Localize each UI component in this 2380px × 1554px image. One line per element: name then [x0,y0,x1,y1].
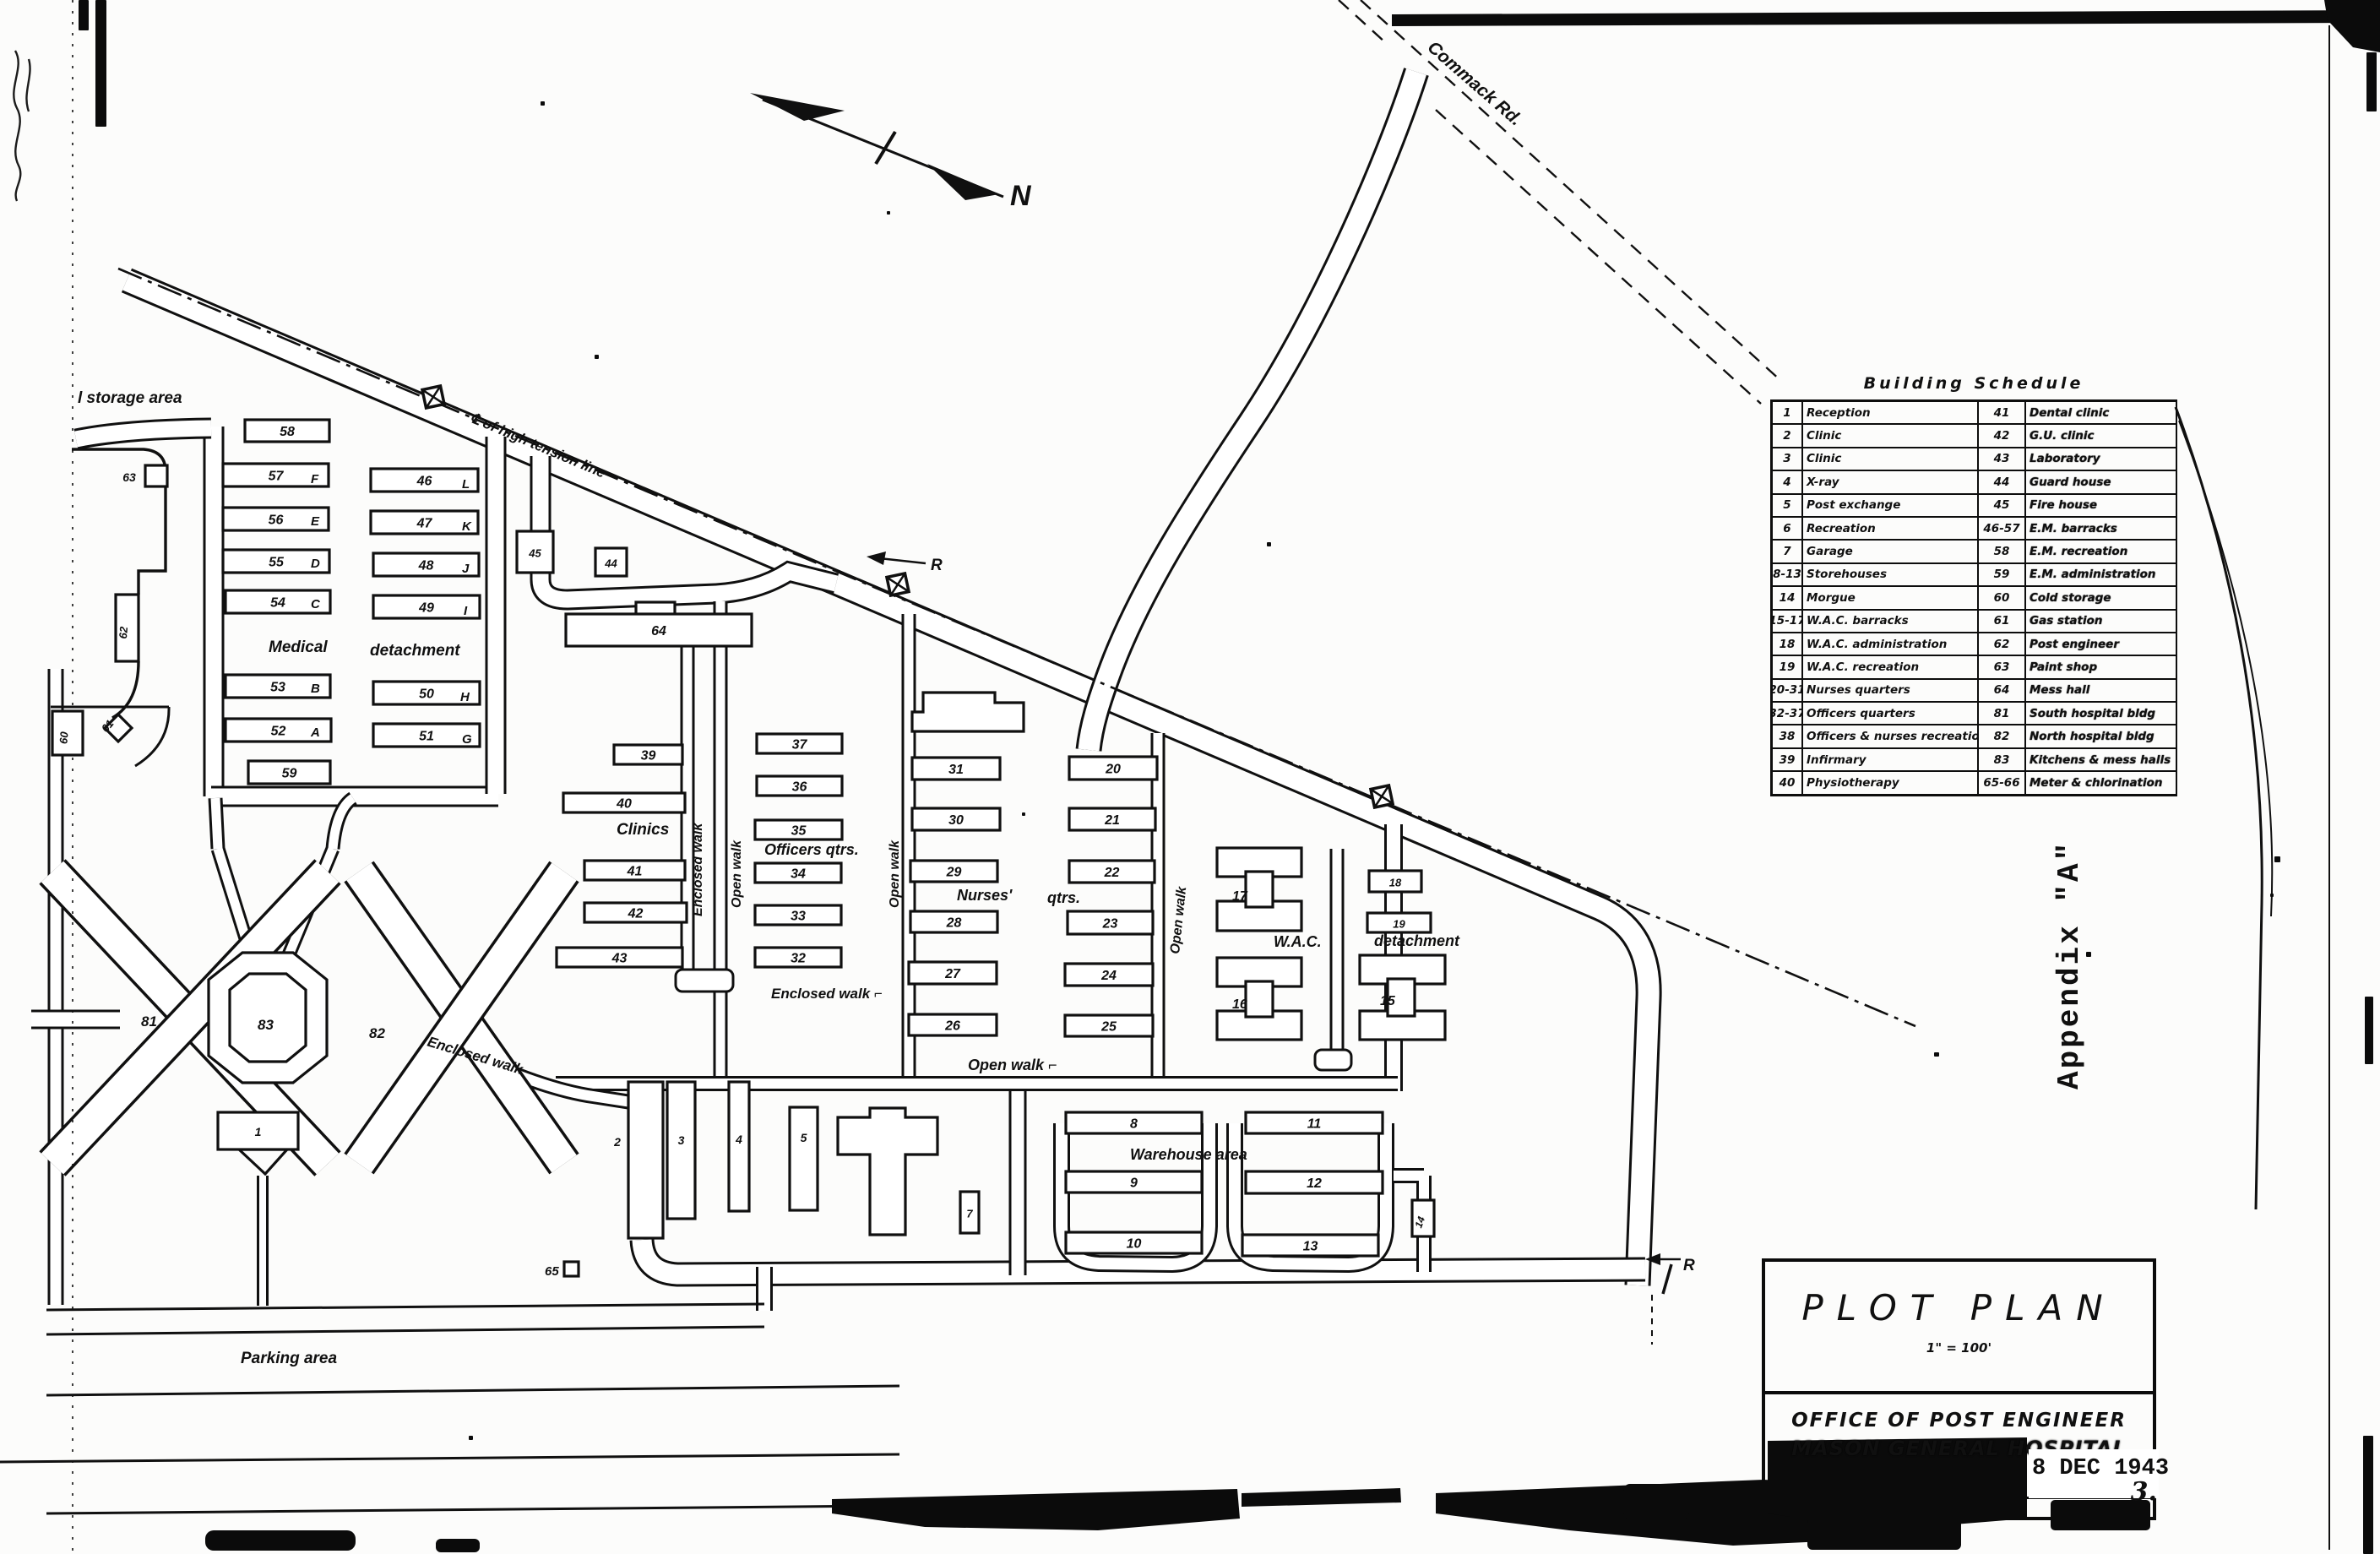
building-3 [667,1082,695,1219]
scanned-plot-plan-sheet: 5857565554535259464748495051454464394041… [0,0,2380,1554]
map-label-f: F [311,472,319,486]
schedule-cell: Post exchange [1803,495,1977,516]
scan-artifact [1022,812,1025,816]
building-number-13: 13 [1303,1240,1318,1254]
schedule-cell: 61 [1977,611,2026,632]
map-label-81: 81 [141,1013,157,1030]
building-number-51: 51 [419,730,434,744]
map-line [46,1327,764,1334]
schedule-cell: 7 [1773,541,1803,562]
map-line [2176,407,2262,1209]
map-label-15: 15 [1380,994,1396,1008]
building-number-2: 2 [613,1135,621,1149]
page-number: 3. [2131,1477,2157,1507]
map-line [112,661,139,718]
schedule-cell: 46-57 [1977,518,2026,539]
map-line [46,1506,887,1513]
building-number-33: 33 [791,910,806,924]
schedule-cell: 65-66 [1977,772,2026,793]
building-number-60: 60 [57,731,70,744]
schedule-cell: Meter & chlorination [2026,772,2176,793]
scan-artifact [1242,1488,1401,1507]
schedule-cell: W.A.C. recreation [1803,656,1977,677]
schedule-cell: 8-13 [1773,564,1803,585]
map-label-e: E [311,514,320,529]
scan-artifact [1807,1518,1961,1550]
map-label-65: 65 [545,1264,559,1279]
building-number-39: 39 [641,749,656,763]
map-label-nurses: Nurses' [957,887,1013,904]
map-label-17: 17 [1232,889,1248,904]
schedule-row-14: 32-37Officers quarters81South hospital b… [1773,703,2176,725]
building-number-21: 21 [1104,813,1120,828]
building-number-12: 12 [1307,1176,1322,1191]
scan-artifact [2324,0,2380,52]
schedule-cell: 32-37 [1773,703,1803,724]
schedule-row-11: 18W.A.C. administration62Post engineer [1773,633,2176,656]
map-line [135,707,169,766]
schedule-cell: Guard house [2026,471,2176,492]
building-number-64: 64 [651,624,666,638]
schedule-row-6: 6Recreation46-57E.M. barracks [1773,518,2176,541]
building-number-29: 29 [946,866,962,880]
building-number-24: 24 [1100,969,1117,983]
map-line [1436,110,1761,404]
schedule-cell: Reception [1803,402,1977,423]
schedule-cell: Officers quarters [1803,703,1977,724]
schedule-row-15: 38Officers & nurses recreation82North ho… [1773,725,2176,748]
building-number-22: 22 [1104,866,1120,880]
map-label-j: J [462,562,470,576]
schedule-cell: 20-31 [1773,680,1803,701]
schedule-row-5: 5Post exchange45Fire house [1773,495,2176,518]
drawing-scale: 1" = 100' [1765,1340,2153,1356]
schedule-cell: 40 [1773,772,1803,793]
building-shape [838,1108,937,1235]
transmission-tower-icon [887,573,909,595]
map-label-clinics: Clinics [617,821,669,839]
building-number-3: 3 [678,1133,685,1147]
building [1246,981,1273,1017]
map-label-l-storage-area: l storage area [78,389,182,407]
schedule-cell: 81 [1977,703,2026,724]
building-number-5: 5 [801,1131,807,1144]
building-2 [628,1082,663,1238]
office-line: OFFICE OF POST ENGINEER [1765,1410,2153,1432]
schedule-cell: 45 [1977,495,2026,516]
building-number-18: 18 [1389,877,1402,889]
map-label-qtrs: qtrs. [1047,889,1080,906]
scan-artifact [1623,1484,1689,1519]
map-label-r: R [1683,1257,1695,1274]
building-number-45: 45 [528,547,541,560]
building-number-56: 56 [269,513,284,528]
schedule-cell: Paint shop [2026,656,2176,677]
map-label-detachment: detachment [1374,932,1460,949]
map-label-k: K [462,519,472,534]
schedule-cell: 2 [1773,425,1803,446]
building-number-59: 59 [282,767,297,781]
schedule-cell: 64 [1977,680,2026,701]
building-schedule-table: 1Reception41Dental clinic2Clinic42G.U. c… [1770,399,2177,796]
map-line [0,1454,899,1462]
building-number-43: 43 [611,952,628,966]
schedule-row-1: 1Reception41Dental clinic [1773,402,2176,425]
building-number-52: 52 [271,725,286,739]
scan-artifact [205,1530,356,1551]
building-number-1: 1 [255,1125,262,1138]
schedule-cell: Physiotherapy [1803,772,1977,793]
schedule-cell: 44 [1977,471,2026,492]
schedule-row-7: 7Garage58E.M. recreation [1773,541,2176,563]
north-arrow [1663,1264,1671,1294]
map-line [1339,0,1385,42]
map-label-open-walk: Open walk ⌐ [968,1057,1057,1073]
map-label-open-walk: Open walk [888,839,902,908]
building-number-4: 4 [735,1133,742,1146]
schedule-cell: Morgue [1803,587,1977,608]
map-label-detachment: detachment [370,642,460,660]
building-number-46: 46 [416,475,432,489]
schedule-cell: E.M. barracks [2026,518,2176,539]
schedule-row-9: 14Morgue60Cold storage [1773,587,2176,610]
schedule-row-4: 4X-ray44Guard house [1773,471,2176,494]
building-number-25: 25 [1100,1020,1117,1035]
schedule-cell: 5 [1773,495,1803,516]
transmission-tower-icon [422,386,444,408]
map-label-w-a-c: W.A.C. [1274,933,1322,950]
building-number-30: 30 [948,813,964,828]
map-label-h: H [460,690,470,704]
transmission-tower-icon [1371,785,1393,807]
map-label-a: A [310,725,320,740]
building-number-53: 53 [270,681,285,695]
map-label-g: G [462,732,472,747]
building-number-55: 55 [269,556,285,570]
handwritten-note [14,51,30,201]
building [1246,872,1273,907]
schedule-cell: 41 [1977,402,2026,423]
map-label-enclosed-walk: Enclosed walk [691,823,705,916]
building-number-11: 11 [1307,1117,1322,1132]
map-label-83: 83 [258,1017,274,1033]
map-label-warehouse-area: Warehouse area [1130,1146,1247,1163]
building-number-37: 37 [792,738,808,753]
building [564,1262,579,1276]
schedule-cell: 39 [1773,749,1803,770]
schedule-cell: E.M. administration [2026,564,2176,585]
map-label-16: 16 [1232,997,1247,1012]
schedule-cell: 6 [1773,518,1803,539]
building-number-7: 7 [966,1208,973,1220]
schedule-cell: Officers & nurses recreation [1803,725,1977,747]
building-number-57: 57 [269,470,285,484]
map-label-parking-area: Parking area [241,1350,337,1367]
schedule-cell: 15-17 [1773,611,1803,632]
map-line [1361,0,1782,382]
schedule-row-17: 40Physiotherapy65-66Meter & chlorination [1773,772,2176,793]
schedule-cell: Mess hall [2026,680,2176,701]
schedule-cell: 42 [1977,425,2026,446]
scan-artifact [2366,52,2377,111]
schedule-cell: 1 [1773,402,1803,423]
building-63 [145,465,167,486]
map-label-r: R [931,557,943,574]
scan-artifact [469,1436,473,1440]
scan-artifact [79,0,89,30]
scan-artifact [95,0,106,127]
map-label-commack-rd: Commack Rd. [1424,37,1526,129]
scan-artifact [436,1539,480,1552]
schedule-cell: 4 [1773,471,1803,492]
schedule-cell: Dental clinic [2026,402,2176,423]
schedule-cell: Gas station [2026,611,2176,632]
schedule-row-10: 15-17W.A.C. barracks61Gas station [1773,611,2176,633]
schedule-row-13: 20-31Nurses quarters64Mess hall [1773,680,2176,703]
schedule-cell: Infirmary [1803,749,1977,770]
building-number-9: 9 [1130,1176,1138,1191]
schedule-row-12: 19W.A.C. recreation63Paint shop [1773,656,2176,679]
schedule-cell: Laboratory [2026,448,2176,470]
road [1089,72,1416,750]
building-number-44: 44 [604,557,617,570]
building-number-49: 49 [418,601,434,616]
map-label-c: C [311,597,321,611]
building-number-26: 26 [944,1019,960,1034]
schedule-row-8: 8-13Storehouses59E.M. administration [1773,564,2176,587]
schedule-row-2: 2Clinic42G.U. clinic [1773,425,2176,448]
schedule-cell: 3 [1773,448,1803,470]
schedule-cell: 82 [1977,725,2026,747]
building-number-32: 32 [791,952,806,966]
map-label-l: L [462,477,470,492]
map-label-b: B [311,682,320,696]
map-line [46,1304,764,1310]
schedule-cell: Garage [1803,541,1977,562]
building-number-50: 50 [419,687,434,702]
building-number-23: 23 [1102,917,1118,932]
scan-artifact [1267,542,1271,546]
map-label-82: 82 [369,1025,385,1041]
scan-artifact [2274,856,2280,862]
building-number-20: 20 [1105,763,1121,777]
building-number-63: 63 [122,470,136,484]
scan-artifact [1392,10,2375,26]
drawing-title: PLOT PLAN [1765,1287,2153,1329]
building-number-34: 34 [791,867,806,882]
schedule-cell: 18 [1773,633,1803,655]
schedule-cell: Clinic [1803,425,1977,446]
map-label-open-walk: Open walk [1168,885,1189,954]
map-label-enclosed-walk: Enclosed walk ⌐ [771,986,883,1002]
schedule-cell: 43 [1977,448,2026,470]
schedule-cell: Post engineer [2026,633,2176,655]
north-arrow [750,93,845,121]
building-schedule: Building Schedule 1Reception41Dental cli… [1770,374,2177,796]
schedule-cell: 58 [1977,541,2026,562]
building-number-62: 62 [117,625,130,638]
north-arrow [867,552,886,565]
schedule-cell: Kitchens & mess halls [2026,749,2176,770]
building-number-19: 19 [1393,918,1405,931]
map-line [46,1386,899,1395]
building-5 [790,1107,818,1210]
scan-artifact [1934,1052,1939,1057]
schedule-cell: W.A.C. barracks [1803,611,1977,632]
date-stamp: 8 DEC 1943 3. [2029,1449,2159,1498]
schedule-cell: Recreation [1803,518,1977,539]
schedule-cell: X-ray [1803,471,1977,492]
title-block-top: PLOT PLAN 1" = 100' [1765,1287,2153,1394]
schedule-cell: 38 [1773,725,1803,747]
map-label-open-walk: Open walk [730,839,744,908]
scan-artifact [2363,1436,2373,1554]
building-number-8: 8 [1130,1117,1138,1132]
walk-shelter [676,970,733,992]
map-label-d: D [311,557,320,571]
schedule-cell: W.A.C. administration [1803,633,1977,655]
building-number-28: 28 [946,916,962,931]
map-label-n: N [1010,180,1032,212]
schedule-cell: Storehouses [1803,564,1977,585]
scan-artifact [887,211,890,215]
schedule-cell: 63 [1977,656,2026,677]
map-label-medical: Medical [269,638,328,656]
building-number-54: 54 [270,596,285,611]
schedule-cell: 83 [1977,749,2026,770]
schedule-cell: 14 [1773,587,1803,608]
building-number-58: 58 [280,425,295,439]
building-number-31: 31 [948,763,964,777]
map-label-officers-qtrs: Officers qtrs. [764,841,859,858]
walk-shelter [1315,1050,1351,1070]
building-number-41: 41 [627,865,643,879]
schedule-cell: 59 [1977,564,2026,585]
schedule-row-3: 3Clinic43Laboratory [1773,448,2176,471]
building-shape [912,693,1024,731]
building-shape [239,1149,287,1174]
schedule-cell: Cold storage [2026,587,2176,608]
building-number-35: 35 [791,824,807,839]
building-number-42: 42 [628,907,644,921]
scan-artifact [541,101,545,106]
building-number-40: 40 [616,797,632,812]
building-number-48: 48 [418,559,434,573]
building-4 [729,1082,749,1211]
schedule-cell: Clinic [1803,448,1977,470]
schedule-cell: E.M. recreation [2026,541,2176,562]
building-number-27: 27 [944,967,961,981]
schedule-cell: South hospital bldg [2026,703,2176,724]
schedule-row-16: 39Infirmary83Kitchens & mess halls [1773,749,2176,772]
scan-artifact [832,1489,1240,1530]
schedule-cell: G.U. clinic [2026,425,2176,446]
scan-artifact [595,355,599,359]
building-number-47: 47 [416,517,433,531]
schedule-cell: Nurses quarters [1803,680,1977,701]
schedule-cell: 62 [1977,633,2026,655]
scan-artifact [2270,894,2274,897]
north-arrow [927,164,999,200]
schedule-cell: 19 [1773,656,1803,677]
map-line [2179,421,2272,916]
building-schedule-title: Building Schedule [1770,374,2177,393]
schedule-cell: 60 [1977,587,2026,608]
scan-artifact [2365,997,2373,1064]
building-number-10: 10 [1127,1237,1142,1252]
schedule-cell: North hospital bldg [2026,725,2176,747]
building-number-36: 36 [792,780,807,795]
schedule-cell: Fire house [2026,495,2176,516]
appendix-label: Appendix "A" [2052,802,2103,1089]
